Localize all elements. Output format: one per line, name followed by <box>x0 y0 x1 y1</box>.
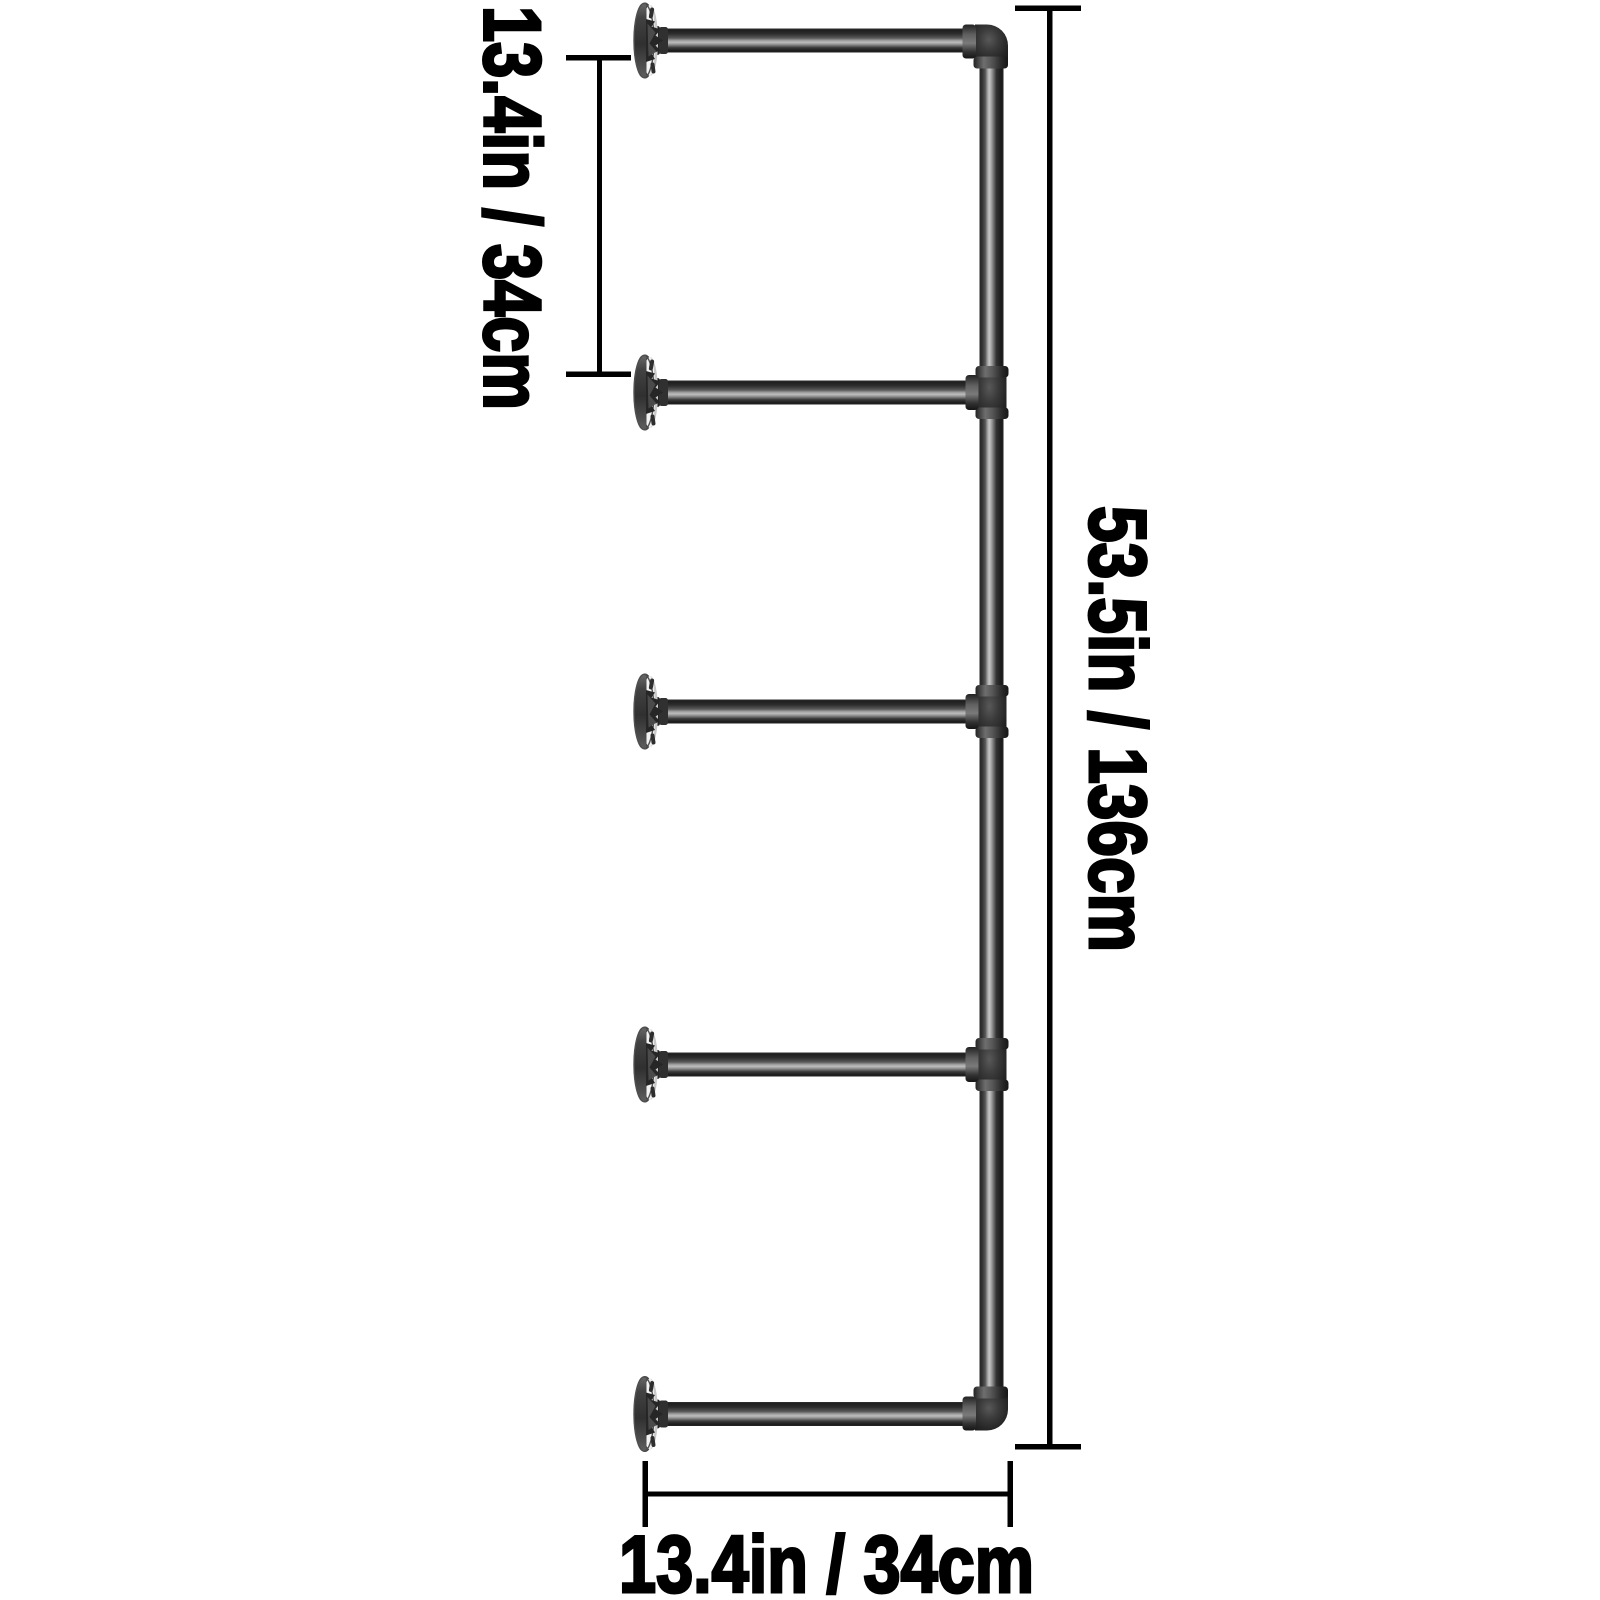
svg-text:13.4in / 34cm: 13.4in / 34cm <box>467 6 557 410</box>
svg-text:53.5in / 136cm: 53.5in / 136cm <box>1072 506 1162 952</box>
svg-text:13.4in / 34cm: 13.4in / 34cm <box>619 1520 1034 1600</box>
